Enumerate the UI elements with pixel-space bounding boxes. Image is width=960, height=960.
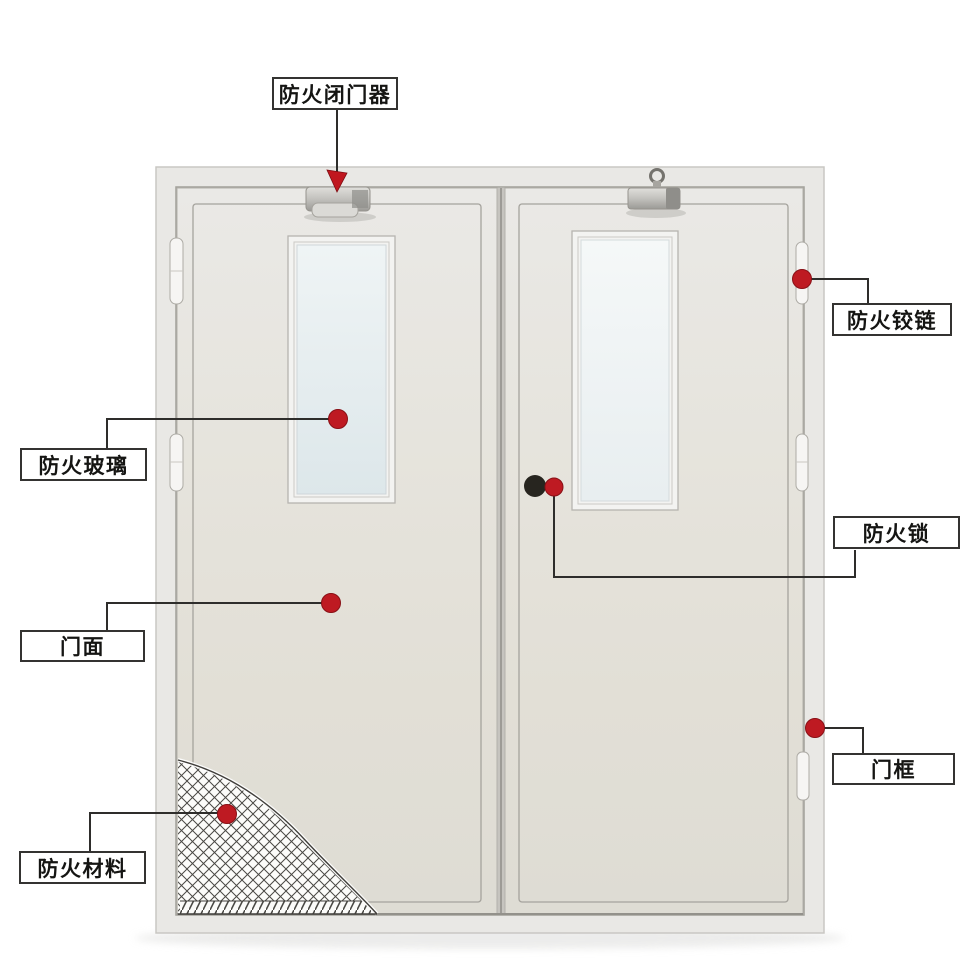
hinge-right-bottom <box>797 752 809 800</box>
left-window-glass <box>297 245 386 494</box>
right-window-glass <box>581 240 669 501</box>
label-fire-glass: 防火玻璃 <box>20 448 147 481</box>
marker-dot-face <box>322 594 341 613</box>
label-door-frame: 门框 <box>832 753 955 785</box>
marker-dot-hinge <box>793 270 812 289</box>
label-door-closer: 防火闭门器 <box>272 77 398 110</box>
right-door-window <box>572 231 678 510</box>
marker-dot-material <box>218 805 237 824</box>
door-closer-left <box>304 187 376 222</box>
label-fire-lock: 防火锁 <box>833 516 960 549</box>
label-fire-material: 防火材料 <box>19 851 146 884</box>
left-door-window <box>288 236 395 503</box>
fire-door-diagram: 防火闭门器 防火铰链 防火玻璃 防火锁 门面 门框 防火材料 <box>0 0 960 960</box>
marker-dot-frame <box>806 719 825 738</box>
label-fire-hinge: 防火铰链 <box>832 303 952 336</box>
label-door-face: 门面 <box>20 630 145 662</box>
marker-dot-lock <box>545 478 563 496</box>
lock-dot <box>524 475 546 497</box>
marker-dot-glass <box>329 410 348 429</box>
